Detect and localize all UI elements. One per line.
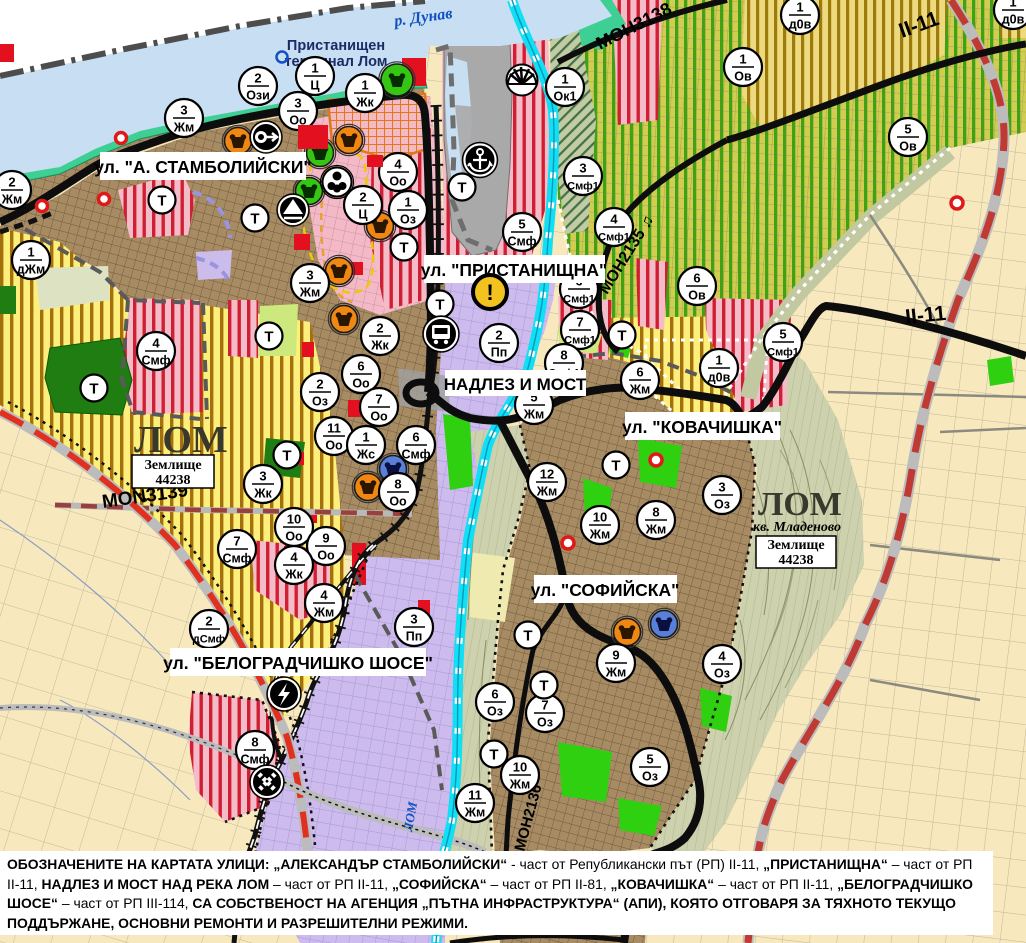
svg-text:2: 2: [254, 71, 261, 86]
svg-text:д0в: д0в: [708, 371, 731, 385]
svg-text:4: 4: [718, 649, 726, 664]
svg-text:1: 1: [1009, 0, 1016, 10]
svg-text:Жм: Жм: [313, 606, 335, 620]
svg-text:3: 3: [294, 96, 301, 111]
svg-text:Землище: Землище: [144, 458, 201, 473]
svg-text:Т: Т: [89, 381, 98, 398]
svg-text:Жм: Жм: [464, 806, 486, 820]
svg-text:д0в: д0в: [1002, 13, 1025, 27]
svg-text:Оо: Оо: [325, 439, 343, 453]
svg-text:9: 9: [322, 531, 329, 546]
svg-text:2: 2: [8, 175, 15, 190]
svg-text:Ози: Ози: [246, 89, 270, 103]
svg-text:8: 8: [394, 477, 401, 492]
svg-text:2: 2: [205, 614, 212, 629]
svg-text:1: 1: [404, 195, 411, 210]
svg-text:Т: Т: [539, 678, 548, 695]
svg-text:Т: Т: [399, 240, 408, 257]
svg-text:Жк: Жк: [370, 339, 389, 353]
svg-text:Смф: Смф: [141, 354, 170, 368]
svg-text:Жм: Жм: [509, 778, 531, 792]
svg-text:Жм: Жм: [523, 408, 545, 422]
svg-text:Ц: Ц: [310, 79, 320, 93]
svg-text:ЛОМ: ЛОМ: [758, 486, 842, 523]
svg-text:ул. "КОВАЧИШКА": ул. "КОВАЧИШКА": [622, 417, 782, 437]
svg-text:7: 7: [375, 392, 382, 407]
svg-text:Смф1: Смф1: [567, 181, 599, 193]
svg-text:6: 6: [636, 365, 643, 380]
svg-text:Оз: Оз: [537, 716, 553, 730]
svg-text:Жм: Жм: [645, 523, 667, 537]
svg-text:Т: Т: [435, 297, 444, 314]
svg-text:Оо: Оо: [352, 377, 370, 391]
svg-text:Оо: Оо: [285, 530, 303, 544]
svg-text:4: 4: [320, 588, 328, 603]
svg-text:Пп: Пп: [406, 630, 423, 644]
svg-text:Жк: Жк: [253, 487, 272, 501]
svg-text:Смф: Смф: [401, 448, 430, 462]
svg-text:Жм: Жм: [1, 193, 23, 207]
svg-text:6: 6: [412, 430, 419, 445]
svg-text:10: 10: [513, 760, 527, 775]
svg-text:Оз: Оз: [400, 213, 416, 227]
svg-text:Оз: Оз: [312, 395, 328, 409]
svg-text:3: 3: [259, 469, 266, 484]
svg-text:Смф: Смф: [222, 552, 251, 566]
svg-text:Оо: Оо: [389, 175, 407, 189]
svg-text:7: 7: [576, 315, 583, 330]
svg-text:Жм: Жм: [589, 528, 611, 542]
svg-text:ул. "СОФИЙСКА": ул. "СОФИЙСКА": [531, 579, 680, 600]
svg-text:4: 4: [394, 157, 402, 172]
svg-text:!: !: [486, 280, 493, 305]
svg-text:Пристанищен: Пристанищен: [287, 38, 385, 54]
svg-text:Пп: Пп: [491, 346, 508, 360]
svg-text:Оз: Оз: [714, 667, 730, 681]
svg-text:Жм: Жм: [605, 666, 627, 680]
svg-text:Оз: Оз: [487, 705, 503, 719]
svg-text:3: 3: [180, 103, 187, 118]
svg-text:ул. "ПРИСТАНИЩНА": ул. "ПРИСТАНИЩНА": [421, 260, 608, 280]
svg-text:3: 3: [306, 268, 313, 283]
svg-text:11: 11: [327, 421, 341, 436]
svg-text:8: 8: [652, 505, 659, 520]
svg-text:дСмф: дСмф: [193, 634, 226, 646]
svg-text:5: 5: [779, 327, 786, 342]
svg-text:5: 5: [518, 217, 525, 232]
svg-text:Т: Т: [264, 329, 273, 346]
svg-text:Жм: Жм: [299, 286, 321, 300]
svg-text:7: 7: [233, 534, 240, 549]
svg-text:Смф1: Смф1: [563, 294, 595, 306]
svg-text:4: 4: [290, 550, 298, 565]
svg-text:8: 8: [251, 735, 258, 750]
svg-text:6: 6: [693, 271, 700, 286]
svg-text:1: 1: [739, 52, 746, 67]
svg-text:Жм: Жм: [536, 485, 558, 499]
svg-text:1: 1: [362, 430, 369, 445]
svg-text:Жм: Жм: [629, 383, 651, 397]
svg-text:ул. "А. СТАМБОЛИЙСКИ": ул. "А. СТАМБОЛИЙСКИ": [94, 156, 311, 177]
svg-text:4: 4: [152, 336, 160, 351]
svg-text:Смф: Смф: [507, 235, 536, 249]
svg-text:Т: Т: [523, 628, 532, 645]
svg-text:4: 4: [610, 212, 618, 227]
svg-text:2: 2: [376, 321, 383, 336]
svg-text:2: 2: [316, 377, 323, 392]
svg-text:8: 8: [560, 348, 567, 363]
svg-text:Жм: Жм: [173, 121, 195, 135]
svg-text:2: 2: [359, 190, 366, 205]
svg-text:НАДЛЕЗ И МОСТ: НАДЛЕЗ И МОСТ: [444, 375, 587, 394]
svg-text:1: 1: [27, 245, 34, 260]
svg-text:Т: Т: [617, 328, 626, 345]
svg-text:Ц: Ц: [358, 208, 368, 222]
svg-text:Ок1: Ок1: [554, 90, 577, 104]
svg-text:44238: 44238: [156, 473, 191, 488]
svg-text:11: 11: [468, 788, 482, 803]
svg-text:Ов: Ов: [899, 140, 917, 154]
svg-text:2: 2: [495, 328, 502, 343]
svg-text:6: 6: [357, 359, 364, 374]
svg-text:Жк: Жк: [284, 568, 303, 582]
svg-text:Оз: Оз: [642, 770, 658, 784]
svg-text:Смф1: Смф1: [767, 347, 799, 359]
svg-text:12: 12: [540, 467, 554, 482]
svg-text:7: 7: [541, 698, 548, 713]
svg-text:кв. Младеново: кв. Младеново: [753, 520, 841, 535]
svg-text:1: 1: [311, 61, 318, 76]
svg-text:Оо: Оо: [370, 410, 388, 424]
svg-text:Т: Т: [457, 180, 466, 197]
svg-text:Смф1: Смф1: [598, 232, 630, 244]
svg-text:Землище: Землище: [767, 538, 824, 553]
svg-text:ул. "БЕЛОГРАДЧИШКО ШОСЕ": ул. "БЕЛОГРАДЧИШКО ШОСЕ": [163, 653, 433, 673]
svg-text:Т: Т: [250, 211, 259, 228]
svg-text:Ов: Ов: [688, 289, 706, 303]
svg-text:9: 9: [612, 648, 619, 663]
svg-text:1: 1: [561, 72, 568, 87]
svg-text:Оо: Оо: [389, 495, 407, 509]
svg-text:д0в: д0в: [789, 18, 812, 32]
svg-text:Ов: Ов: [734, 70, 752, 84]
svg-text:Т: Т: [282, 448, 291, 465]
svg-text:дЖм: дЖм: [17, 263, 45, 277]
svg-text:Жс: Жс: [356, 448, 375, 462]
svg-text:5: 5: [646, 752, 653, 767]
svg-text:Т: Т: [157, 193, 166, 210]
svg-text:Т: Т: [611, 458, 620, 475]
svg-text:Оо: Оо: [317, 549, 335, 563]
svg-text:6: 6: [491, 687, 498, 702]
svg-text:10: 10: [593, 510, 607, 525]
svg-text:1: 1: [361, 78, 368, 93]
svg-text:3: 3: [579, 161, 586, 176]
svg-text:3: 3: [718, 480, 725, 495]
svg-text:Т: Т: [489, 747, 498, 764]
svg-text:II-11: II-11: [904, 302, 947, 329]
svg-text:10: 10: [287, 512, 301, 527]
svg-text:1: 1: [715, 353, 722, 368]
svg-text:Жк: Жк: [355, 96, 374, 110]
svg-text:5: 5: [904, 122, 911, 137]
svg-text:3: 3: [410, 612, 417, 627]
svg-text:1: 1: [796, 0, 803, 15]
svg-text:Оз: Оз: [714, 498, 730, 512]
svg-text:44238: 44238: [779, 553, 814, 568]
